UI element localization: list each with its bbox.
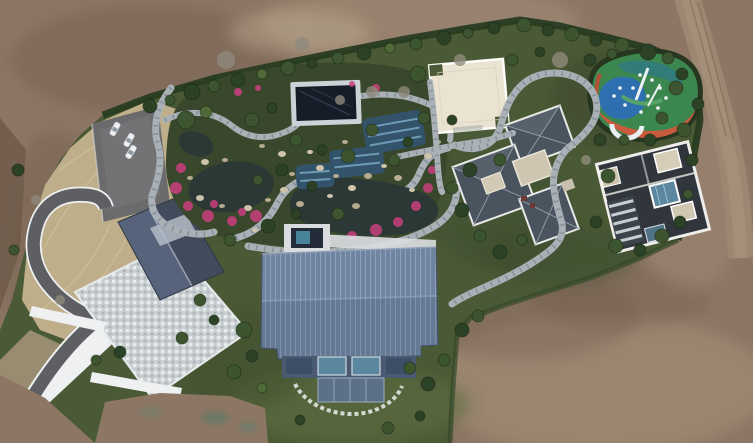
azalea-cluster bbox=[227, 216, 237, 226]
tree bbox=[388, 154, 400, 166]
azalea-cluster bbox=[170, 182, 182, 194]
tree bbox=[291, 209, 301, 219]
play-equipment-dot bbox=[618, 86, 622, 90]
tree bbox=[398, 86, 410, 98]
play-equipment-dot bbox=[658, 86, 662, 90]
tree bbox=[177, 111, 195, 129]
tree bbox=[382, 422, 394, 434]
tree bbox=[655, 229, 669, 243]
tree bbox=[91, 355, 101, 365]
tree bbox=[209, 315, 219, 325]
play-equipment-dot bbox=[664, 96, 668, 100]
rock bbox=[409, 188, 415, 192]
tree bbox=[276, 164, 288, 176]
tree bbox=[565, 27, 579, 41]
cream-flat-roof-building bbox=[429, 59, 509, 134]
rock bbox=[352, 203, 360, 209]
tree bbox=[165, 95, 175, 105]
tree bbox=[410, 66, 426, 82]
tree bbox=[31, 195, 41, 205]
rock bbox=[348, 185, 356, 191]
tree bbox=[474, 230, 486, 242]
aerial-photo bbox=[0, 0, 753, 443]
tree bbox=[55, 295, 65, 305]
tree bbox=[357, 46, 371, 60]
tree bbox=[184, 84, 200, 100]
tree bbox=[438, 354, 450, 366]
tree bbox=[535, 47, 545, 57]
tree bbox=[463, 163, 477, 177]
play-equipment-dot bbox=[631, 86, 635, 90]
tree bbox=[640, 44, 656, 60]
tree bbox=[335, 95, 345, 105]
tree bbox=[257, 383, 267, 393]
rock bbox=[394, 175, 402, 181]
tree bbox=[227, 365, 241, 379]
tree bbox=[517, 235, 527, 245]
spa-pool bbox=[284, 224, 330, 252]
tree bbox=[12, 164, 24, 176]
rock bbox=[187, 176, 193, 180]
tree bbox=[615, 38, 629, 52]
tree bbox=[295, 415, 305, 425]
rock bbox=[381, 164, 387, 168]
tree bbox=[656, 112, 668, 124]
tree bbox=[410, 38, 422, 50]
tree bbox=[224, 234, 236, 246]
tree bbox=[194, 294, 206, 306]
rock bbox=[265, 198, 271, 202]
tree bbox=[208, 80, 220, 92]
tree bbox=[257, 69, 267, 79]
azalea-cluster bbox=[238, 208, 246, 216]
tree bbox=[584, 54, 596, 66]
tree bbox=[463, 28, 473, 38]
tree bbox=[267, 103, 277, 113]
rock bbox=[259, 144, 265, 148]
rock bbox=[316, 165, 324, 171]
tree bbox=[385, 43, 395, 53]
rock bbox=[219, 204, 225, 208]
glass-courtyard bbox=[649, 180, 680, 208]
tree bbox=[437, 31, 451, 45]
rock bbox=[222, 158, 228, 162]
azalea-cluster bbox=[183, 201, 193, 211]
tree bbox=[542, 24, 554, 36]
tree bbox=[332, 52, 344, 64]
rock bbox=[342, 140, 348, 144]
play-equipment-dot bbox=[646, 94, 650, 98]
tree bbox=[676, 68, 688, 80]
tree bbox=[644, 134, 656, 146]
tree bbox=[281, 61, 295, 75]
tree bbox=[366, 86, 378, 98]
tree bbox=[662, 52, 674, 64]
tree bbox=[454, 54, 466, 66]
azalea-cluster bbox=[250, 210, 262, 222]
rock bbox=[252, 228, 258, 232]
roof-accent bbox=[521, 196, 527, 201]
rock bbox=[296, 201, 304, 207]
tree bbox=[692, 98, 704, 110]
tree bbox=[114, 346, 126, 358]
play-equipment-dot bbox=[623, 103, 627, 107]
rock bbox=[196, 195, 204, 201]
azalea-cluster bbox=[423, 183, 433, 193]
tree bbox=[455, 323, 469, 337]
tree bbox=[421, 377, 435, 391]
azalea-cluster bbox=[393, 217, 403, 227]
tree bbox=[472, 310, 484, 322]
rock bbox=[364, 173, 372, 179]
tree bbox=[493, 245, 507, 259]
tree bbox=[341, 149, 355, 163]
tree bbox=[455, 203, 469, 217]
rock bbox=[278, 151, 286, 157]
rock bbox=[333, 174, 339, 178]
rock bbox=[201, 159, 209, 165]
tree bbox=[404, 362, 416, 374]
azalea-cluster bbox=[349, 81, 355, 87]
play-equipment-dot bbox=[650, 78, 654, 82]
tree bbox=[9, 245, 19, 255]
tree bbox=[552, 52, 568, 68]
tree bbox=[607, 49, 617, 59]
tree bbox=[307, 181, 317, 191]
tree bbox=[295, 37, 309, 51]
atrium-glass bbox=[318, 378, 384, 402]
tree bbox=[686, 154, 698, 166]
azalea-cluster bbox=[428, 166, 436, 174]
play-equipment-dot bbox=[639, 110, 643, 114]
azalea-cluster bbox=[370, 224, 382, 236]
tree bbox=[446, 182, 458, 194]
tree bbox=[488, 22, 500, 34]
tree bbox=[634, 244, 646, 256]
rock bbox=[280, 187, 288, 193]
tree bbox=[418, 112, 430, 124]
tree bbox=[619, 135, 629, 145]
roof-accent bbox=[530, 203, 535, 208]
azalea-cluster bbox=[411, 201, 421, 211]
tree bbox=[609, 239, 623, 253]
azalea-cluster bbox=[255, 85, 261, 91]
tree bbox=[601, 169, 615, 183]
tree bbox=[253, 175, 263, 185]
tree bbox=[307, 58, 317, 68]
rock bbox=[289, 172, 295, 176]
play-equipment-dot bbox=[638, 73, 642, 77]
tree bbox=[594, 134, 606, 146]
tree bbox=[415, 411, 425, 421]
tree bbox=[590, 216, 602, 228]
tree bbox=[447, 115, 457, 125]
azalea-cluster bbox=[210, 200, 218, 208]
tree bbox=[494, 154, 506, 166]
tree bbox=[200, 106, 212, 118]
tree bbox=[403, 137, 413, 147]
aerial-photo-canvas bbox=[0, 0, 753, 443]
tree bbox=[231, 73, 245, 87]
azalea-cluster bbox=[176, 163, 186, 173]
tree bbox=[332, 208, 344, 220]
tree bbox=[217, 51, 235, 69]
play-equipment-dot bbox=[656, 106, 660, 110]
rock bbox=[327, 194, 333, 198]
tree bbox=[176, 332, 188, 344]
tree bbox=[261, 219, 275, 233]
tree bbox=[669, 81, 683, 95]
rock bbox=[307, 150, 313, 154]
tree bbox=[246, 350, 258, 362]
tree bbox=[506, 54, 518, 66]
tree bbox=[677, 123, 691, 137]
tree bbox=[290, 134, 302, 146]
tree bbox=[674, 216, 686, 228]
azalea-cluster bbox=[202, 210, 214, 222]
tree bbox=[236, 322, 252, 338]
tree bbox=[317, 145, 327, 155]
tree bbox=[366, 124, 378, 136]
tree bbox=[590, 34, 602, 46]
azalea-cluster bbox=[234, 88, 242, 96]
tree bbox=[143, 99, 157, 113]
tree bbox=[683, 189, 693, 199]
tree bbox=[517, 18, 531, 32]
tree bbox=[581, 155, 591, 165]
tree bbox=[245, 113, 259, 127]
play-equipment-dot bbox=[612, 94, 616, 98]
